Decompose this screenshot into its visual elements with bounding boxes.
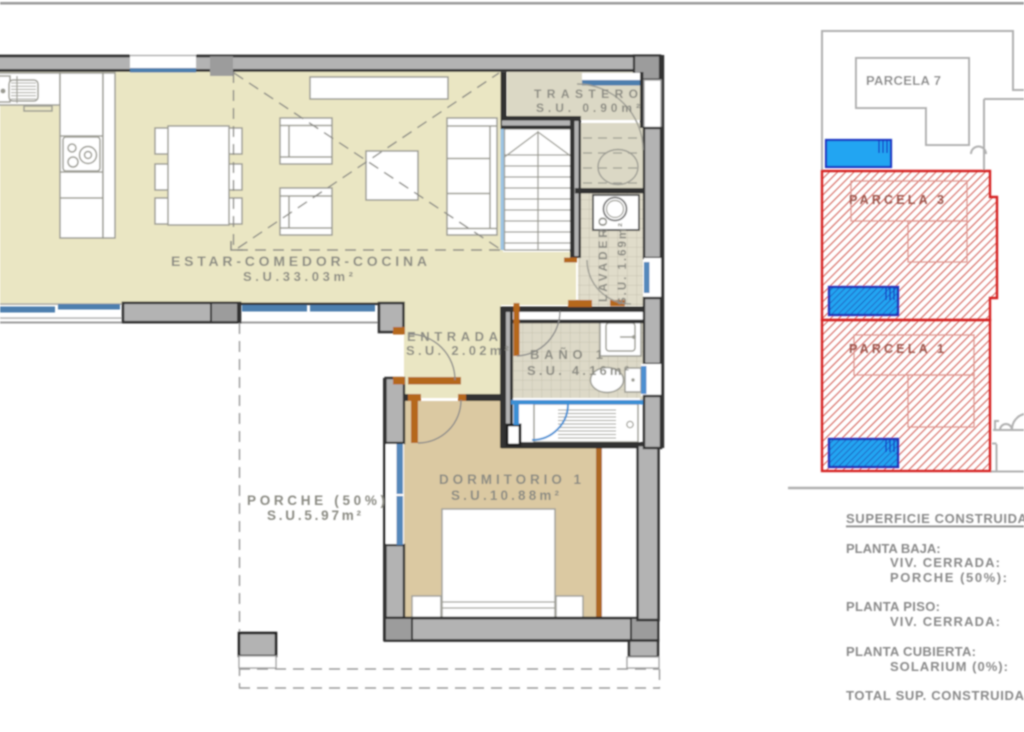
svg-text:DORMITORIO 1: DORMITORIO 1 <box>439 472 581 487</box>
svg-text:VIV. CERRADA:: VIV. CERRADA: <box>890 555 1000 570</box>
svg-text:S.U. 4.16m²: S.U. 4.16m² <box>527 363 630 378</box>
svg-text:PLANTA CUBIERTA:: PLANTA CUBIERTA: <box>846 644 976 659</box>
svg-text:PORCHE (50%):: PORCHE (50%): <box>890 570 1007 585</box>
svg-text:SUPERFICIE CONSTRUIDA:: SUPERFICIE CONSTRUIDA: <box>846 511 1024 526</box>
svg-text:S.U.5.97m²: S.U.5.97m² <box>267 508 362 523</box>
svg-text:VIV. CERRADA:: VIV. CERRADA: <box>890 614 1000 629</box>
svg-text:SOLARIUM (0%):: SOLARIUM (0%): <box>890 659 1008 674</box>
svg-text:PLANTA BAJA:: PLANTA BAJA: <box>846 541 941 556</box>
svg-text:PARCELA 1: PARCELA 1 <box>849 342 944 356</box>
svg-text:PORCHE (50%): PORCHE (50%) <box>247 493 385 508</box>
svg-text:PLANTA PISO:: PLANTA PISO: <box>846 599 940 614</box>
svg-text:LAVADERO: LAVADERO <box>596 217 610 302</box>
svg-text:PARCELA 3: PARCELA 3 <box>849 193 944 207</box>
svg-text:S.U. 2.02m²: S.U. 2.02m² <box>406 343 510 358</box>
svg-text:S.U. 1.69m²: S.U. 1.69m² <box>617 223 629 305</box>
svg-text:TOTAL SUP. CONSTRUIDA:: TOTAL SUP. CONSTRUIDA: <box>846 688 1024 703</box>
svg-text:PARCELA 7: PARCELA 7 <box>866 73 941 88</box>
